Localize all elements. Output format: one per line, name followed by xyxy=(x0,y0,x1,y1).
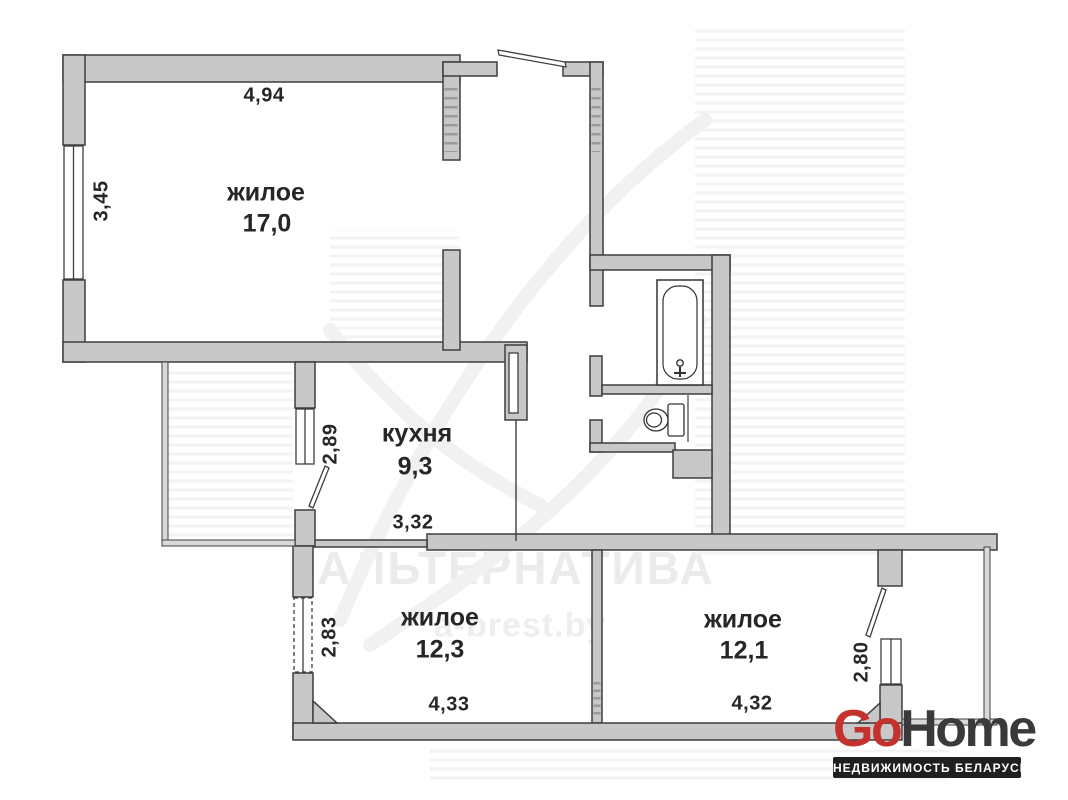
logo-go: Go xyxy=(833,700,900,758)
gohome-logo: GoHome НЕДВИЖИМОСТЬ БЕЛАРУСИ xyxy=(833,702,1023,778)
dim-kitchen-width: 3,32 xyxy=(393,512,434,535)
dim-kitchen-height: 2,89 xyxy=(320,424,343,465)
logo-wordmark: GoHome xyxy=(833,702,1023,756)
floorplan-canvas: АЛЬТЕРНАТИВА a-brest.by xyxy=(0,0,1068,800)
room-balcony-door-icon xyxy=(866,588,886,637)
entrance-door-icon xyxy=(498,50,566,67)
room-living1-area: 17,0 xyxy=(243,210,292,239)
kitchen-balcony-door-icon xyxy=(309,466,329,508)
room-living3-area: 12,1 xyxy=(720,637,769,666)
dim-living1-height: 3,45 xyxy=(91,181,114,222)
logo-home: Home xyxy=(900,700,1034,758)
room-kitchen-area: 9,3 xyxy=(398,453,433,482)
dim-living3-balcony: 2,80 xyxy=(851,642,874,683)
room-living1-label: жилое xyxy=(227,179,305,208)
dim-living2-height: 2,83 xyxy=(319,617,342,658)
floorplan-drawing xyxy=(0,0,1068,800)
dim-living1-width: 4,94 xyxy=(244,85,285,108)
room-living2-area: 12,3 xyxy=(416,636,465,665)
logo-tagline: НЕДВИЖИМОСТЬ БЕЛАРУСИ xyxy=(833,757,1021,778)
room-living2-label: жилое xyxy=(401,604,479,633)
bathtub-icon xyxy=(657,280,703,385)
watermark-hatch xyxy=(168,25,950,785)
dim-living3-width: 4,32 xyxy=(732,693,773,716)
room-kitchen-label: кухня xyxy=(382,420,452,449)
dim-living2-width: 4,33 xyxy=(429,694,470,717)
room-living3-label: жилое xyxy=(704,606,782,635)
